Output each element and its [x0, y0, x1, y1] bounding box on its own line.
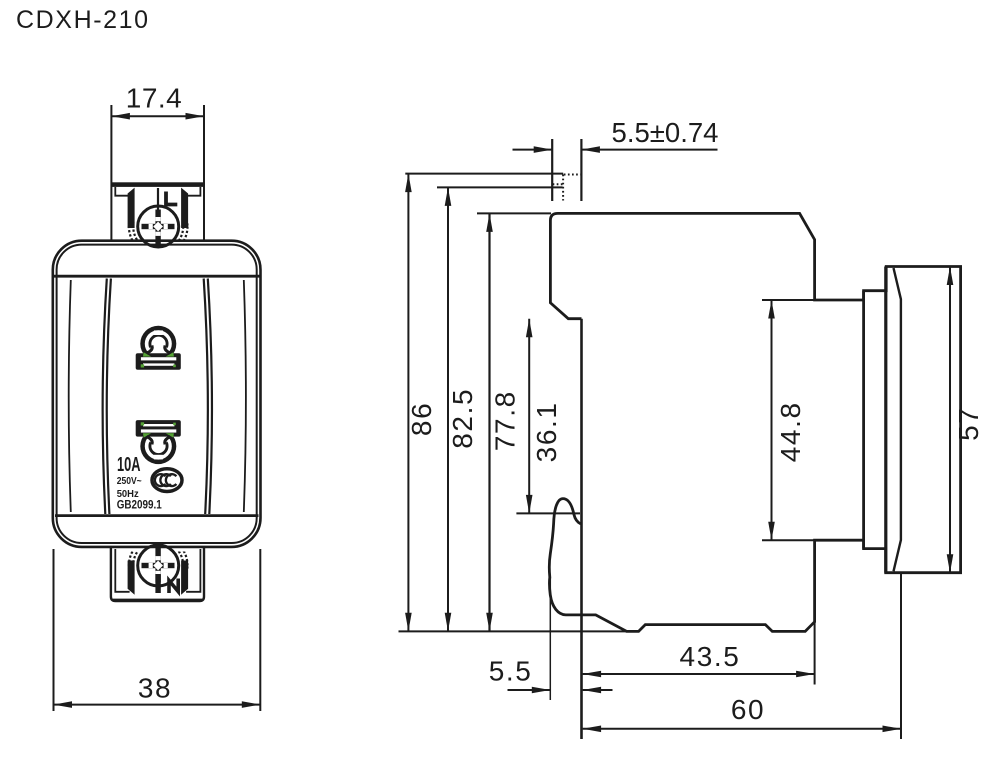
svg-text:77.8: 77.8: [490, 390, 521, 451]
svg-text:60: 60: [731, 694, 765, 725]
svg-text:36.1: 36.1: [531, 401, 562, 462]
svg-text:250V~: 250V~: [117, 476, 142, 487]
svg-text:GB2099.1: GB2099.1: [117, 500, 163, 512]
svg-text:44.8: 44.8: [775, 401, 806, 462]
svg-text:5.5: 5.5: [489, 655, 533, 686]
svg-text:38: 38: [138, 672, 172, 703]
svg-text:CDXH-210: CDXH-210: [16, 6, 150, 34]
svg-text:50Hz: 50Hz: [117, 489, 139, 500]
svg-text:43.5: 43.5: [680, 641, 741, 672]
svg-text:17.4: 17.4: [126, 83, 183, 114]
svg-text:5.5±0.74: 5.5±0.74: [612, 117, 719, 148]
svg-text:82.5: 82.5: [447, 388, 478, 449]
svg-text:57: 57: [953, 407, 984, 441]
svg-text:86: 86: [406, 402, 437, 436]
svg-text:10A: 10A: [117, 453, 141, 476]
